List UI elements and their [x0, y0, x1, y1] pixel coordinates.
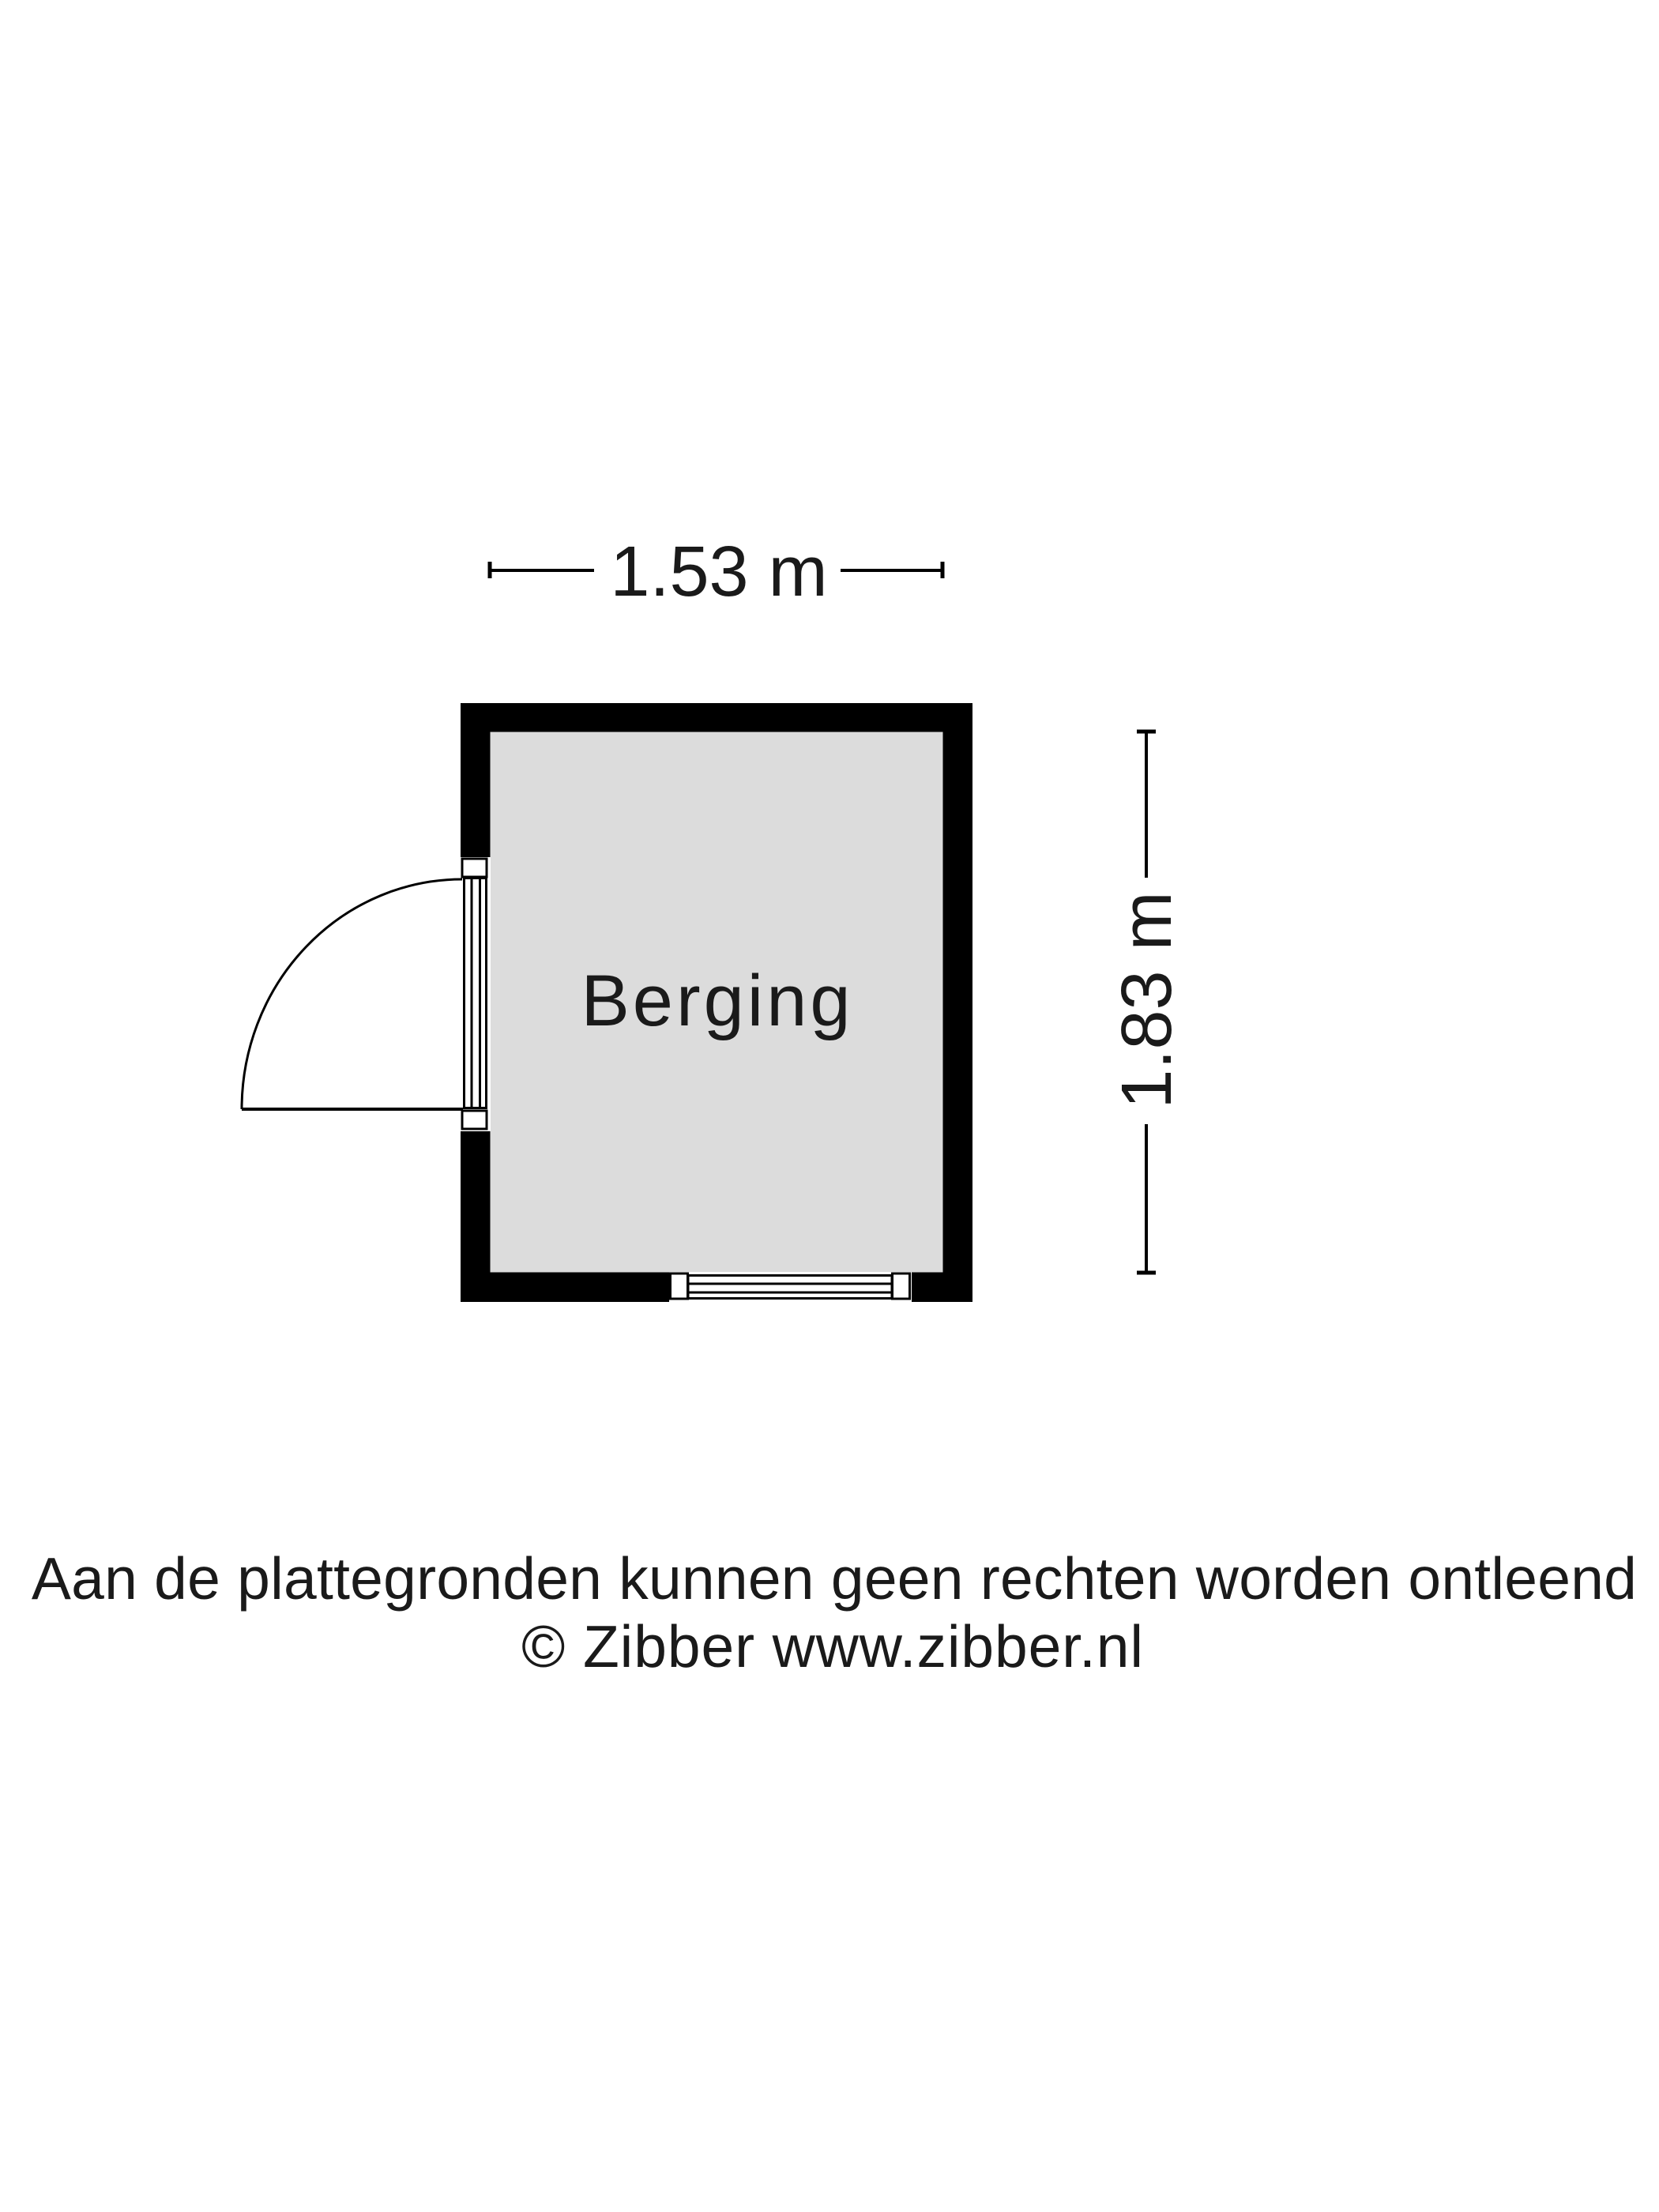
svg-text:1.53 m: 1.53 m: [610, 532, 827, 611]
svg-text:1.83 m: 1.83 m: [1108, 891, 1187, 1108]
svg-text:Berging: Berging: [581, 961, 853, 1041]
svg-text:© Zibber www.zibber.nl: © Zibber www.zibber.nl: [521, 1613, 1144, 1680]
svg-text:Aan de plattegronden kunnen ge: Aan de plattegronden kunnen geen rechten…: [32, 1545, 1637, 1612]
